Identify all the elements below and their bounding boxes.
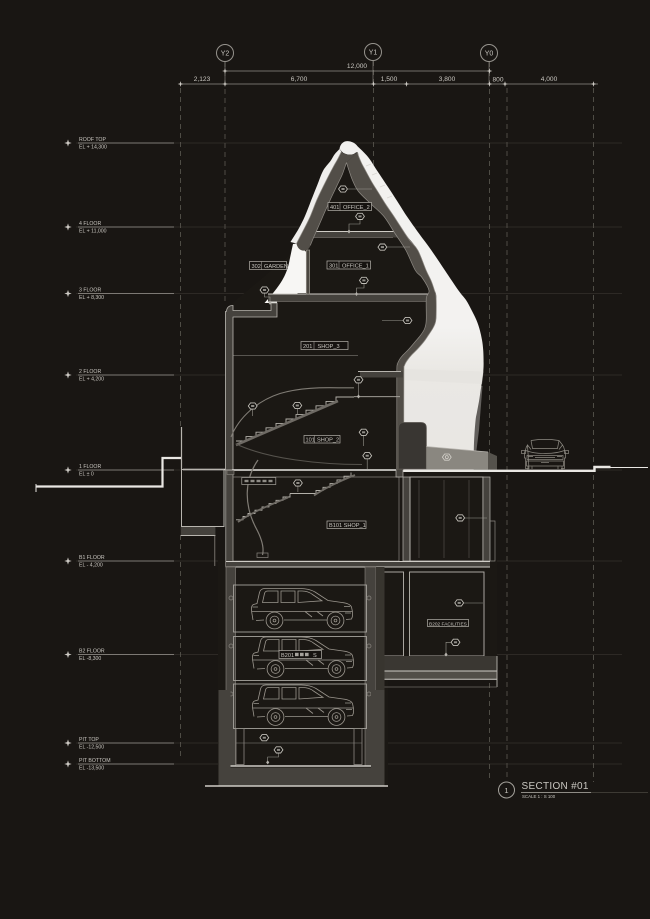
svg-text:4 FLOOR: 4 FLOOR xyxy=(79,221,101,227)
svg-text:PIT BOTTOM: PIT BOTTOM xyxy=(79,758,111,764)
svg-text:OFFICE_1: OFFICE_1 xyxy=(342,263,369,269)
svg-text:201: 201 xyxy=(303,344,312,350)
svg-text:S: S xyxy=(313,653,317,659)
svg-text:800: 800 xyxy=(492,77,503,84)
svg-text:B202 FACILITIES: B202 FACILITIES xyxy=(429,621,467,627)
svg-text:PIT TOP: PIT TOP xyxy=(79,737,99,743)
svg-text:1,500: 1,500 xyxy=(381,76,398,83)
svg-text:101: 101 xyxy=(306,438,315,444)
svg-text:GARDEN: GARDEN xyxy=(264,264,288,270)
svg-text:EL + 8,300: EL + 8,300 xyxy=(79,295,104,301)
svg-text:EL + 11,000: EL + 11,000 xyxy=(79,229,107,235)
svg-text:B2 FLOOR: B2 FLOOR xyxy=(79,649,105,655)
svg-text:6,700: 6,700 xyxy=(291,76,308,83)
svg-text:EL + 4,200: EL + 4,200 xyxy=(79,377,104,383)
svg-text:1 FLOOR: 1 FLOOR xyxy=(79,464,101,470)
svg-text:1: 1 xyxy=(504,786,508,795)
svg-text:B1 FLOOR: B1 FLOOR xyxy=(79,555,105,561)
svg-text:SHOP_3: SHOP_3 xyxy=(318,344,340,350)
svg-text:SCALE 1 : S 100: SCALE 1 : S 100 xyxy=(522,794,556,799)
svg-text:4,000: 4,000 xyxy=(541,76,558,83)
svg-text:EL -13,500: EL -13,500 xyxy=(79,766,104,772)
svg-text:301: 301 xyxy=(329,263,338,269)
svg-text:EL -8,300: EL -8,300 xyxy=(79,656,101,662)
svg-text:3 FLOOR: 3 FLOOR xyxy=(79,288,101,294)
svg-text:EL - 4,200: EL - 4,200 xyxy=(79,563,103,569)
svg-text:OFFICE_2: OFFICE_2 xyxy=(343,205,370,211)
svg-text:EL -12,500: EL -12,500 xyxy=(79,745,104,751)
svg-text:Y0: Y0 xyxy=(485,51,494,58)
svg-text:B101 SHOP_1: B101 SHOP_1 xyxy=(329,523,366,529)
svg-text:2,123: 2,123 xyxy=(194,76,211,83)
svg-text:Y2: Y2 xyxy=(221,51,230,58)
svg-text:SECTION #01: SECTION #01 xyxy=(522,781,589,792)
svg-text:3,800: 3,800 xyxy=(439,76,456,83)
svg-text:12,000: 12,000 xyxy=(347,63,368,70)
svg-text:EL ± 0: EL ± 0 xyxy=(79,472,94,478)
svg-text:2 FLOOR: 2 FLOOR xyxy=(79,369,101,375)
svg-text:302: 302 xyxy=(252,264,261,270)
svg-text:401: 401 xyxy=(330,205,339,211)
svg-text:ROOF TOP: ROOF TOP xyxy=(79,137,106,143)
svg-text:EL + 14,300: EL + 14,300 xyxy=(79,145,107,151)
svg-text:Y1: Y1 xyxy=(369,50,378,57)
svg-text:B201: B201 xyxy=(281,653,294,659)
svg-text:SHOP_2: SHOP_2 xyxy=(317,438,339,444)
